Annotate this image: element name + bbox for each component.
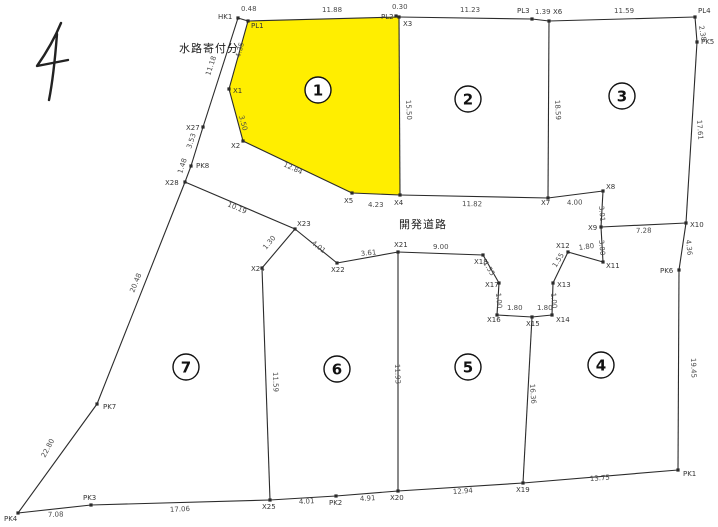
survey-point-X20 [396,489,399,492]
survey-point-X10 [684,221,687,224]
boundary-line-X15-X16 [497,315,532,317]
dimension-label: 19.45 [689,358,698,378]
survey-point-label-X19: X19 [516,486,530,494]
survey-point-label-X21: X21 [394,241,408,249]
dimension-label: 1.48 [176,157,188,174]
survey-point-PK7 [95,402,98,405]
survey-point-PK2 [334,494,337,497]
survey-point-label-PL4: PL4 [698,7,711,15]
dimension-label: 1.80 [578,242,595,252]
survey-point-label-X20: X20 [390,494,404,502]
dimension-label: 18.59 [553,100,562,120]
survey-point-X18 [481,253,484,256]
waterway-donation-label: 水路寄付分 [179,40,239,56]
survey-point-label-X22: X22 [331,266,345,274]
survey-point-label-X17: X17 [485,281,499,289]
survey-point-X15 [530,315,533,318]
survey-point-label-X16: X16 [487,316,501,324]
survey-point-label-X10: X10 [690,221,704,229]
dimension-label: 9.00 [433,243,449,251]
dimension-label: 11.59 [271,372,280,392]
dimension-label: 11.23 [460,6,480,14]
parcel-number-4: 4 [596,357,606,375]
dimension-label: 22.80 [40,437,56,458]
survey-point-label-PL1: PL1 [251,22,264,30]
survey-point-label-PK4: PK4 [4,515,18,523]
survey-point-PK6 [677,268,680,271]
boundary-line-X18-X21 [398,252,483,255]
survey-point-X22 [335,261,338,264]
survey-point-X21 [396,250,399,253]
survey-point-label-X25: X25 [262,503,276,511]
survey-point-HK1 [236,16,239,19]
survey-point-label-PK3: PK3 [83,494,96,502]
survey-point-PK5 [695,40,698,43]
dimension-label: 3.53 [185,132,197,149]
survey-point-label-X4: X4 [394,199,404,207]
survey-point-X27 [201,125,204,128]
cadastral-map-canvas: HK1PL1PL2X3PL3X6PL4PK5X10PK6PK1X19X20PK2… [0,0,718,527]
survey-point-label-X23: X23 [297,220,311,228]
dimension-label: 11.82 [462,200,482,208]
survey-point-PL2 [394,14,397,17]
highlighted-parcel-1 [229,17,400,195]
survey-point-label-X12: X12 [556,242,570,250]
survey-point-label-X1: X1 [233,87,242,95]
survey-point-X14 [550,313,553,316]
survey-point-label-X7: X7 [541,199,550,207]
parcel-number-5: 5 [463,359,473,377]
survey-point-PK1 [676,468,679,471]
dimension-label: 15.50 [404,100,413,120]
dimension-label: 4.01 [299,497,315,506]
dimension-label: 4.00 [567,198,583,207]
dimension-label: 3.00 [597,239,606,255]
survey-point-X25 [268,498,271,501]
survey-point-X5 [350,191,353,194]
survey-point-X28 [183,180,186,183]
dimension-label: 3.61 [360,248,376,258]
dimension-label: 13.75 [590,474,611,483]
parcel-number-7: 7 [181,359,191,377]
survey-point-PK8 [189,164,192,167]
dimension-label: 4.36 [684,239,694,256]
survey-point-label-PL3: PL3 [517,7,530,15]
boundary-line-PL3-X6 [532,19,549,21]
boundary-line-PK6-PK1 [678,270,679,470]
boundary-line-PL4-PK5 [695,17,697,42]
dimension-label: 11.88 [322,6,342,14]
survey-point-label-X27: X27 [186,124,200,132]
survey-point-label-X13: X13 [557,281,571,289]
boundary-line-X14-X15 [532,315,552,317]
dimension-label: 3.01 [597,205,606,221]
survey-point-X3 [397,15,400,18]
survey-point-X19 [521,481,524,484]
survey-point-label-X8: X8 [606,183,615,191]
survey-point-label-X11: X11 [606,262,620,270]
survey-point-PL1 [246,19,249,22]
dimension-label: 0.30 [392,3,408,11]
survey-point-label-PL2: PL2 [381,13,394,21]
dimension-label: 4.23 [368,201,384,209]
parcel-number-6: 6 [332,361,342,379]
survey-point-label-HK1: HK1 [218,13,232,21]
survey-point-X1 [227,87,230,90]
survey-point-X4 [398,193,401,196]
dimension-label: 11.18 [204,55,218,77]
dimension-label: 20.48 [128,272,143,294]
survey-point-PL4 [693,15,696,18]
survey-point-X13 [551,281,554,284]
survey-point-label-PK2: PK2 [329,499,342,507]
survey-point-label-X24: X24 [251,265,265,273]
boundary-line-PK7-X28 [97,182,185,404]
dimension-label: 16.36 [528,384,537,405]
survey-point-label-X2: X2 [231,142,240,150]
survey-point-label-X6: X6 [553,8,563,16]
survey-point-label-PK6: PK6 [660,267,674,275]
boundary-line-X11-X12 [568,252,603,262]
dimension-label: 1.39 [535,8,551,16]
survey-point-X12 [566,250,569,253]
survey-point-label-X15: X15 [526,320,540,328]
survey-map-page: HK1PL1PL2X3PL3X6PL4PK5X10PK6PK1X19X20PK2… [0,0,718,527]
boundary-line-PK5-X10 [686,42,697,223]
dimension-label: 1.30 [261,234,277,251]
boundary-line-X7-X8 [548,191,603,198]
development-road-label: 開発道路 [399,216,447,232]
survey-point-label-PK1: PK1 [683,470,696,478]
dimension-label: 10.19 [226,200,248,215]
dimension-label: 7.28 [636,227,652,235]
dimension-label: 11.93 [393,364,402,384]
dimension-label: 4.91 [360,494,376,503]
survey-point-label-X5: X5 [344,197,353,205]
survey-point-PK3 [89,503,92,506]
dimension-label: 1.00 [494,292,503,308]
survey-point-X11 [601,260,604,263]
survey-point-X9 [599,225,602,228]
survey-point-PL3 [530,17,533,20]
dimension-label: 12.94 [453,487,474,496]
boundary-line-X3-PL3 [399,17,532,19]
boundary-line-X25-PK3 [91,500,270,505]
survey-point-label-X9: X9 [588,224,597,232]
survey-point-label-PK8: PK8 [196,162,209,170]
dimension-label: 2.38 [697,25,708,42]
survey-point-label-X3: X3 [403,20,412,28]
dimension-label: 1.80 [537,304,553,312]
parcel-number-2: 2 [463,91,473,109]
survey-point-label-X14: X14 [556,316,570,324]
dimension-label: 17.06 [170,505,191,514]
dimension-label: 7.08 [48,510,64,519]
survey-point-label-X28: X28 [165,179,179,187]
boundary-line-X24-X25 [262,268,270,500]
boundary-line-X6-PL4 [549,17,695,21]
boundary-line-X4-X7 [400,195,548,198]
parcel-number-3: 3 [617,88,627,106]
dimension-label: 0.48 [241,5,257,13]
survey-point-X6 [547,19,550,22]
parcel-number-1: 1 [313,82,323,100]
boundary-line-X6-X7 [548,21,549,198]
survey-point-X2 [241,139,244,142]
survey-point-X8 [601,189,604,192]
dimension-label: 17.61 [695,120,704,141]
dimension-label: 11.59 [614,7,634,15]
survey-point-label-PK7: PK7 [103,403,116,411]
dimension-label: 1.80 [507,304,523,312]
